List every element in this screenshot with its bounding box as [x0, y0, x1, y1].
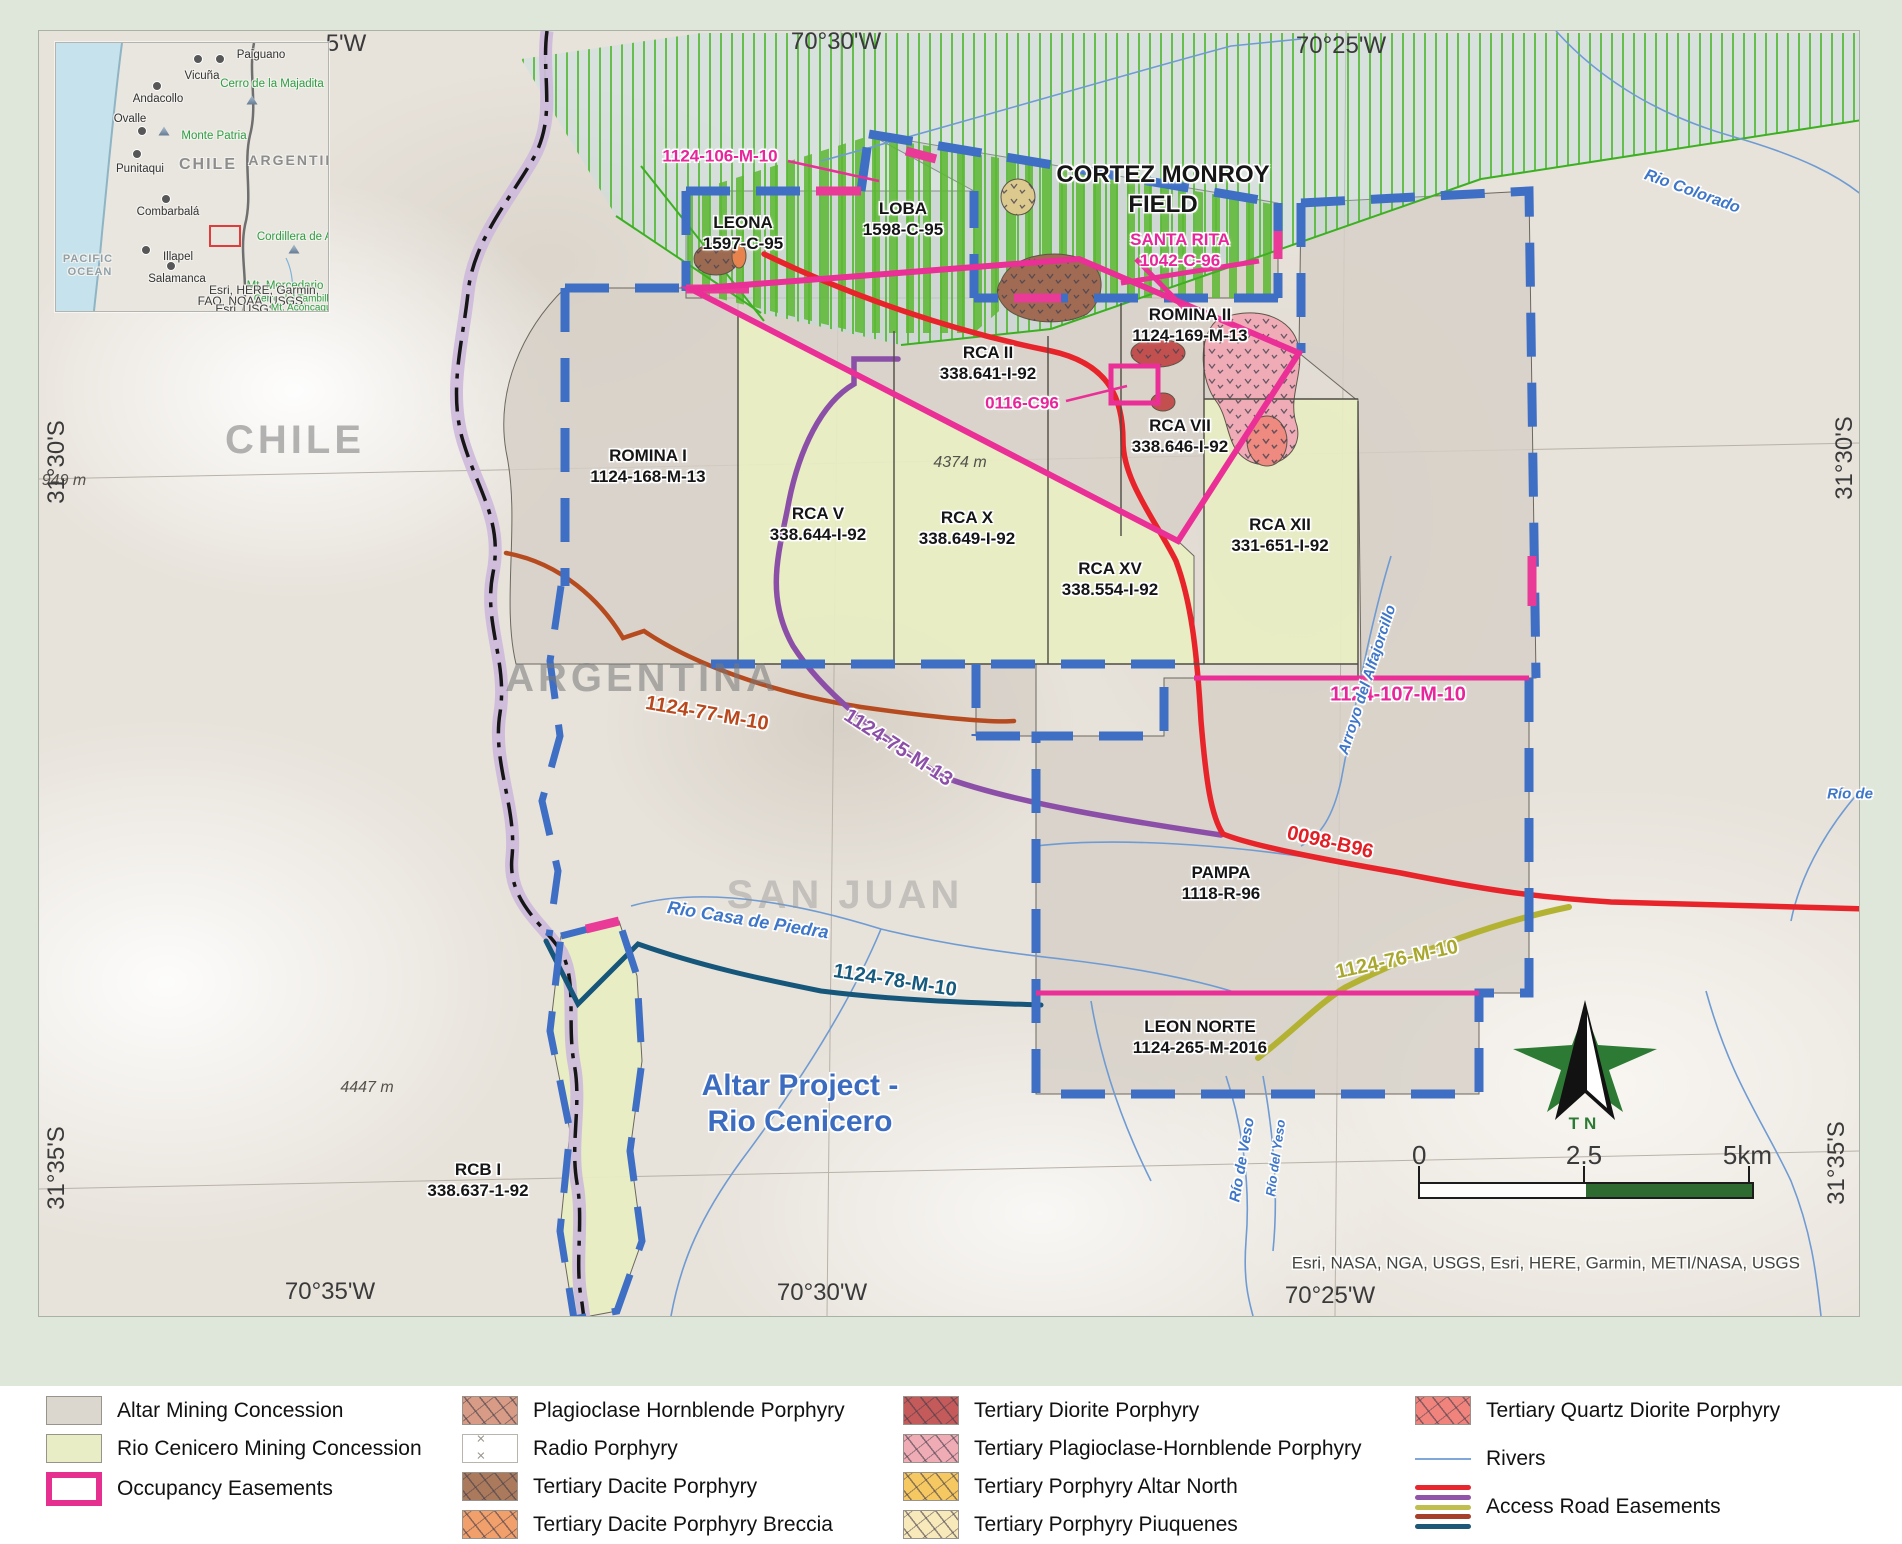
city-dot [132, 149, 142, 159]
north-arrow-label: TN [1569, 1114, 1602, 1133]
rca15-name: RCA XV [1078, 559, 1142, 578]
concession-label-rca10: RCA X 338.649-I-92 [919, 507, 1015, 550]
concession-label-romina1: ROMINA I 1124-168-M-13 [590, 445, 705, 488]
concession-label-rcb1: RCB I 338.637-1-92 [427, 1159, 528, 1202]
legend-label: Radio Porphyry [533, 1437, 678, 1461]
rca5-name: RCA V [792, 504, 844, 523]
rcb-name: RCB I [455, 1160, 501, 1179]
legend: Altar Mining Concession Rio Cenicero Min… [0, 1386, 1902, 1544]
legend-item-plag-hornblende: Plagioclase Hornblende Porphyry [462, 1396, 845, 1425]
map-attribution: Esri, NASA, NGA, USGS, Esri, HERE, Garmi… [1292, 1252, 1800, 1273]
rca7-name: RCA VII [1149, 416, 1211, 435]
map-document: 1124-106-M-10 LEONA 1597-C-95 LOBA 1598-… [0, 0, 1902, 1544]
inset-attr-3: Esri, USGS [215, 302, 276, 312]
province-label-san-juan: SAN JUAN [727, 870, 963, 920]
swatch-dacite-breccia [462, 1510, 518, 1539]
elevation-4374: 4374 m [933, 453, 986, 473]
pampa-name: PAMPA [1192, 863, 1251, 882]
easement-label-1124-106: 1124-106-M-10 [662, 145, 777, 166]
peak-label-majadita: Cerro de la Majadita [220, 78, 324, 90]
rca2-code: 338.641-I-92 [940, 364, 1036, 383]
cortez-line1: CORTEZ MONROY [1056, 161, 1269, 188]
romina1-code: 1124-168-M-13 [590, 467, 705, 486]
legend-item-rivers: Rivers [1415, 1447, 1780, 1471]
legend-item-dacite: Tertiary Dacite Porphyry [462, 1472, 845, 1501]
concession-label-loba: LOBA 1598-C-95 [863, 198, 943, 241]
santa-rita-name: SANTA RITA [1130, 230, 1230, 249]
scale-bar: 0 2.5 5km [1418, 1140, 1758, 1199]
swatch-radio-porphyry [462, 1434, 518, 1463]
coord-bottom-left: 70°35'W [285, 1278, 375, 1306]
legend-label: Altar Mining Concession [117, 1399, 343, 1423]
city-dot [137, 126, 147, 136]
legend-label: Rio Cenicero Mining Concession [117, 1437, 422, 1461]
concession-label-pampa: PAMPA 1118-R-96 [1182, 862, 1260, 905]
city-dot [215, 54, 225, 64]
legend-item-altar: Altar Mining Concession [46, 1396, 422, 1425]
rca10-code: 338.649-I-92 [919, 529, 1015, 548]
legend-item-diorite: Tertiary Diorite Porphyry [903, 1396, 1362, 1425]
swatch-access-roads [1415, 1485, 1471, 1529]
swatch-tertiary-plag-hornblende [903, 1434, 959, 1463]
coord-bottom-right: 70°25'W [1285, 1282, 1375, 1310]
coord-left-lower: 31°35'S [43, 1126, 71, 1210]
concession-boundaries [542, 134, 1536, 1316]
swatch-rivers [1415, 1458, 1471, 1460]
project-title: Altar Project - Rio Cenicero [702, 1068, 899, 1140]
city-dot [141, 245, 151, 255]
concession-label-romina2: ROMINA II 1124-169-M-13 [1132, 304, 1247, 347]
concession-label-leon-norte: LEON NORTE 1124-265-M-2016 [1133, 1016, 1267, 1059]
swatch-altar-concession [46, 1396, 102, 1425]
inset-country-chile: CHILE [179, 156, 237, 174]
legend-item-piuquenes: Tertiary Porphyry Piuquenes [903, 1510, 1362, 1539]
city-dot [166, 261, 176, 271]
legend-item-dacite-breccia: Tertiary Dacite Porphyry Breccia [462, 1510, 845, 1539]
city-dot [161, 194, 171, 204]
legend-item-access-roads: Access Road Easements [1415, 1485, 1780, 1529]
legend-item-altar-north: Tertiary Porphyry Altar North [903, 1472, 1362, 1501]
loba-code: 1598-C-95 [863, 220, 943, 239]
project-line2: Rio Cenicero [707, 1105, 892, 1138]
swatch-occupancy-easements [46, 1472, 102, 1506]
project-line1: Altar Project - [702, 1069, 899, 1102]
legend-label: Tertiary Plagioclase-Hornblende Porphyry [974, 1437, 1362, 1461]
concession-label-rca15: RCA XV 338.554-I-92 [1062, 558, 1158, 601]
legend-label: Tertiary Diorite Porphyry [974, 1399, 1199, 1423]
leon-code: 1124-265-M-2016 [1133, 1038, 1267, 1057]
legend-item-occupancy: Occupancy Easements [46, 1472, 422, 1506]
legend-label: Tertiary Dacite Porphyry Breccia [533, 1513, 833, 1537]
legend-label: Occupancy Easements [117, 1477, 333, 1501]
legend-item-radio-porphyry: Radio Porphyry [462, 1434, 845, 1463]
country-label-argentina: ARGENTINA [505, 653, 779, 703]
ocean-label-line1: PACIFIC [63, 253, 113, 265]
romina1-name: ROMINA I [609, 446, 687, 465]
coord-right-upper: 31°30'S [1831, 416, 1859, 500]
river-label-rio-de: Río de [1827, 786, 1873, 805]
easement-label-0116: 0116-C96 [985, 392, 1059, 413]
country-label-chile: CHILE [225, 415, 365, 465]
legend-label: Tertiary Dacite Porphyry [533, 1475, 757, 1499]
peak-label-monte-patria: Monte Patria [181, 130, 246, 142]
leona-name: LEONA [713, 213, 773, 232]
cortez-line2: FIELD [1128, 191, 1197, 218]
swatch-rio-cenicero-concession [46, 1434, 102, 1463]
inset-locator-map: Paiguano Vicuña Andacollo Ovalle Cerro d… [55, 42, 329, 312]
rca12-code: 331-651-I-92 [1231, 536, 1328, 555]
concession-label-rca12: RCA XII 331-651-I-92 [1231, 514, 1328, 557]
ocean-label-line2: OCEAN [68, 266, 113, 278]
elevation-4447: 4447 m [340, 1078, 393, 1098]
city-label-andacollo: Andacollo [133, 93, 184, 105]
loba-name: LOBA [879, 199, 927, 218]
city-label-paiguano: Paiguano [237, 49, 286, 61]
coord-top-left: 5'W [326, 30, 367, 58]
city-dot [152, 81, 162, 91]
field-label-cortez-monroy: CORTEZ MONROY FIELD [1056, 160, 1269, 220]
pampa-code: 1118-R-96 [1182, 884, 1260, 903]
swatch-plagioclase-hornblende [462, 1396, 518, 1425]
romina2-code: 1124-169-M-13 [1132, 326, 1247, 345]
rcb-code: 338.637-1-92 [427, 1181, 528, 1200]
scale-bar-graphic [1418, 1182, 1754, 1199]
concession-label-rca5: RCA V 338.644-I-92 [770, 503, 866, 546]
easement-label-santa-rita: SANTA RITA 1042-C-96 [1130, 229, 1230, 272]
romina2-name: ROMINA II [1149, 305, 1231, 324]
city-label-punitaqui: Punitaqui [116, 163, 164, 175]
rca15-code: 338.554-I-92 [1062, 580, 1158, 599]
santa-rita-code: 1042-C-96 [1140, 251, 1220, 270]
concession-label-rca7: RCA VII 338.646-I-92 [1132, 415, 1228, 458]
concession-label-rca2: RCA II 338.641-I-92 [940, 342, 1036, 385]
city-label-combarbala: Combarbalá [137, 206, 200, 218]
swatch-dacite-porphyry [462, 1472, 518, 1501]
legend-label: Tertiary Quartz Diorite Porphyry [1486, 1399, 1780, 1423]
rca5-code: 338.644-I-92 [770, 525, 866, 544]
legend-item-quartz-diorite: Tertiary Quartz Diorite Porphyry [1415, 1396, 1780, 1425]
city-label-vicuna: Vicuña [185, 70, 220, 82]
legend-item-tert-plag-hornblende: Tertiary Plagioclase-Hornblende Porphyry [903, 1434, 1362, 1463]
legend-item-rio-cenicero: Rio Cenicero Mining Concession [46, 1434, 422, 1463]
peak-label-ansilta: Cordillera de Ansilta [257, 231, 329, 243]
rca2-name: RCA II [963, 343, 1013, 362]
legend-label: Access Road Easements [1486, 1495, 1721, 1519]
city-label-ovalle: Ovalle [114, 113, 147, 125]
concession-label-leona: LEONA 1597-C-95 [703, 212, 783, 255]
legend-label: Tertiary Porphyry Altar North [974, 1475, 1238, 1499]
coord-top-mid: 70°30'W [791, 28, 881, 56]
coord-top-right: 70°25'W [1296, 32, 1386, 60]
north-arrow: TN [1510, 996, 1662, 1138]
inset-country-argentina: ARGENTINA [248, 152, 329, 168]
legend-label: Rivers [1486, 1447, 1546, 1471]
swatch-quartz-diorite [1415, 1396, 1471, 1425]
city-label-salamanca: Salamanca [148, 273, 206, 285]
swatch-porphyry-piuquenes [903, 1510, 959, 1539]
city-dot [193, 54, 203, 64]
peak-label-aconcagua: Mt. Aconcagua [271, 303, 329, 313]
leona-code: 1597-C-95 [703, 234, 783, 253]
legend-label: Tertiary Porphyry Piuquenes [974, 1513, 1238, 1537]
rca10-name: RCA X [941, 508, 993, 527]
inset-extent-rectangle [210, 226, 240, 246]
swatch-diorite-porphyry [903, 1396, 959, 1425]
rca7-code: 338.646-I-92 [1132, 437, 1228, 456]
swatch-porphyry-altar-north [903, 1472, 959, 1501]
legend-label: Plagioclase Hornblende Porphyry [533, 1399, 845, 1423]
rca12-name: RCA XII [1249, 515, 1311, 534]
coord-left-upper: 31°30'S [43, 420, 71, 504]
leon-name: LEON NORTE [1144, 1017, 1255, 1036]
coord-bottom-mid: 70°30'W [777, 1279, 867, 1307]
coord-right-lower: 31°35'S [1823, 1121, 1851, 1205]
